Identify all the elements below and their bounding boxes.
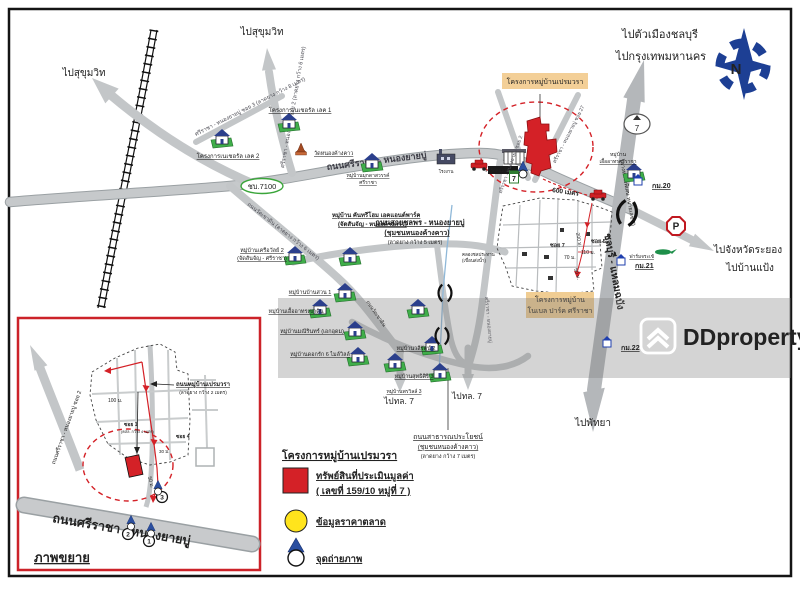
distance-label: 70 ม. xyxy=(564,255,576,261)
distance-label: 100 ม. xyxy=(108,398,122,404)
p-label: P xyxy=(673,222,680,233)
soi-label: ซอย 7 xyxy=(550,242,565,249)
dir-tl7-right: ไปทล. 7 xyxy=(451,391,482,401)
legend-title: โครงการหมู่บ้านเปรมวรา xyxy=(281,449,397,463)
village-label: ศรีราชา xyxy=(359,179,377,186)
village-label: หมู่บ้าน xyxy=(610,151,627,158)
village-label: หมู่บ้านดอกรัก 6 ไมล์วิลล์ xyxy=(290,351,350,358)
road-label-south3: (ลาดยาง กว้าง 7 เมตร) xyxy=(421,453,476,460)
legend-asset-label: ทรัพย์สินที่ประเมินมูลค่า xyxy=(316,468,414,483)
temple-label: วัดหนองค้างคาว xyxy=(314,150,353,157)
legend-asset-label2: ( เลขที่ 159/10 หมู่ที่ 7 ) xyxy=(316,483,410,498)
village-label: (จัดสันจัญ - ศรีราชา) xyxy=(237,255,287,262)
dir-rayong: ไปจังหวัดระยอง xyxy=(713,244,782,256)
compass-north-label: N xyxy=(731,61,742,78)
village-label: หมู่บ้านมุกดาสวรรค์ xyxy=(347,172,390,179)
dir-bangkok: ไปกรุงเทพมหานคร xyxy=(615,50,706,63)
soi-label: ซอย 4 xyxy=(176,434,190,440)
canal-label: (เขื่อนส่งน้ำ) xyxy=(462,257,486,263)
road-label-south1: ถนนสาธารณประโยชน์ xyxy=(413,432,483,441)
inset-prem-road-label: ถนนหมู่บ้านเปรมวรา xyxy=(176,380,230,389)
farm-label: ฟาร์มจระเข้ xyxy=(629,253,654,260)
village-label: โครงการเนเชอรัล เลค 1 xyxy=(269,106,332,114)
route-marker: ชบ.7100 xyxy=(241,179,283,194)
distance-label: 30 ม. xyxy=(159,449,169,454)
map-page: 7 xyxy=(0,0,800,598)
shield-number: 7 xyxy=(635,124,640,133)
factory-label: โรงงาน xyxy=(439,168,454,174)
village-label: หมู่บ้านวลีรัตน์ 2 xyxy=(397,345,436,352)
village-label: หมู่บ้านเครือวัลย์ 2 xyxy=(240,247,284,254)
km-marker-label: กม.20 xyxy=(652,183,671,190)
photo-point-2: 2 xyxy=(126,532,130,539)
route-number: ชบ.7100 xyxy=(248,182,277,191)
inset-title: ภาพขยาย xyxy=(34,550,90,565)
legend-market-label: ข้อมูลราคาตลาด xyxy=(316,516,386,529)
dir-ban-paeng: ไปบ้านแป้ง xyxy=(725,262,774,274)
village-label: หมู่บ้านสุทธิศิริ 3 xyxy=(395,373,434,380)
village-label: หมู่บ้านบ้านสวน 1 xyxy=(289,289,332,296)
legend-market-swatch xyxy=(285,510,307,532)
dir-pattaya: ไปพัทยา xyxy=(574,417,611,429)
photo-point-3: 3 xyxy=(160,495,164,502)
map-canvas: 7 xyxy=(0,0,800,598)
village-label: หมู่บ้านมณีรินทร์ (เอกอุดม) xyxy=(280,328,344,335)
km-marker-label: กม.22 xyxy=(621,345,640,352)
dir-sukhumvit-nw: ไปสุขุมวิท xyxy=(61,67,105,79)
village-label: หมู่บ้าน คันทรีโฮม เอคแอนด์พาร์ค xyxy=(332,211,420,220)
highway-shield: 7 xyxy=(624,114,650,134)
distance-label: 110 ม. xyxy=(581,250,595,256)
dir-tl7-left: ไปทล. 7 xyxy=(383,396,414,406)
village-label: (จัดสันจัญ - หนองค้างคาว) xyxy=(338,220,407,228)
soi-label: ซอย 5 xyxy=(591,238,606,245)
road-label-cluster3: (ลาดยาง กว้าง 5 เมตร) xyxy=(388,239,443,246)
gas-station: P xyxy=(667,217,685,235)
km-marker-label: กม.21 xyxy=(635,263,654,270)
seven-icon xyxy=(510,171,519,183)
project-banner-label: โครงการหมู่บ้านเปรมวรา xyxy=(507,77,584,86)
ddproperty-logo-text: DDproperty xyxy=(683,324,800,350)
village-label: หมู่บ้านเอื้ออาทรเขาดิน xyxy=(268,307,323,315)
inset-prem-road-note: (ลาดยาง กว้าง 2 เมตร) xyxy=(179,389,227,396)
photo-point-1: 1 xyxy=(147,539,151,546)
road-label-cluster2: (ชุมชนหนองค้างคาว) xyxy=(384,228,449,237)
soi-label: ซอย 1 xyxy=(124,422,138,428)
legend-photo-label: จุดถ่ายภาพ xyxy=(316,554,362,565)
dir-chonburi: ไปตัวเมืองชลบุรี xyxy=(621,28,698,41)
soi-note: (คสล. กว้าง 4 เมตร) xyxy=(121,429,155,434)
canal-label: คลองชลประทาน xyxy=(462,252,495,257)
dir-sukhumvit-n: ไปสุขุมวิท xyxy=(239,26,283,38)
legend-asset-swatch xyxy=(283,468,308,493)
road-label-south2: (ชุมชนหนองค้างคาว) xyxy=(418,443,479,451)
village-label: โครงการเนเชอรัล เลค 2 xyxy=(197,152,260,160)
inset-map: ถนนศรีราชา - หนองยายบู่ ถนนศรีราชา - หนอ… xyxy=(18,318,260,570)
village-label: หมู่บ้านพรวิลล์ 3 xyxy=(386,388,421,395)
